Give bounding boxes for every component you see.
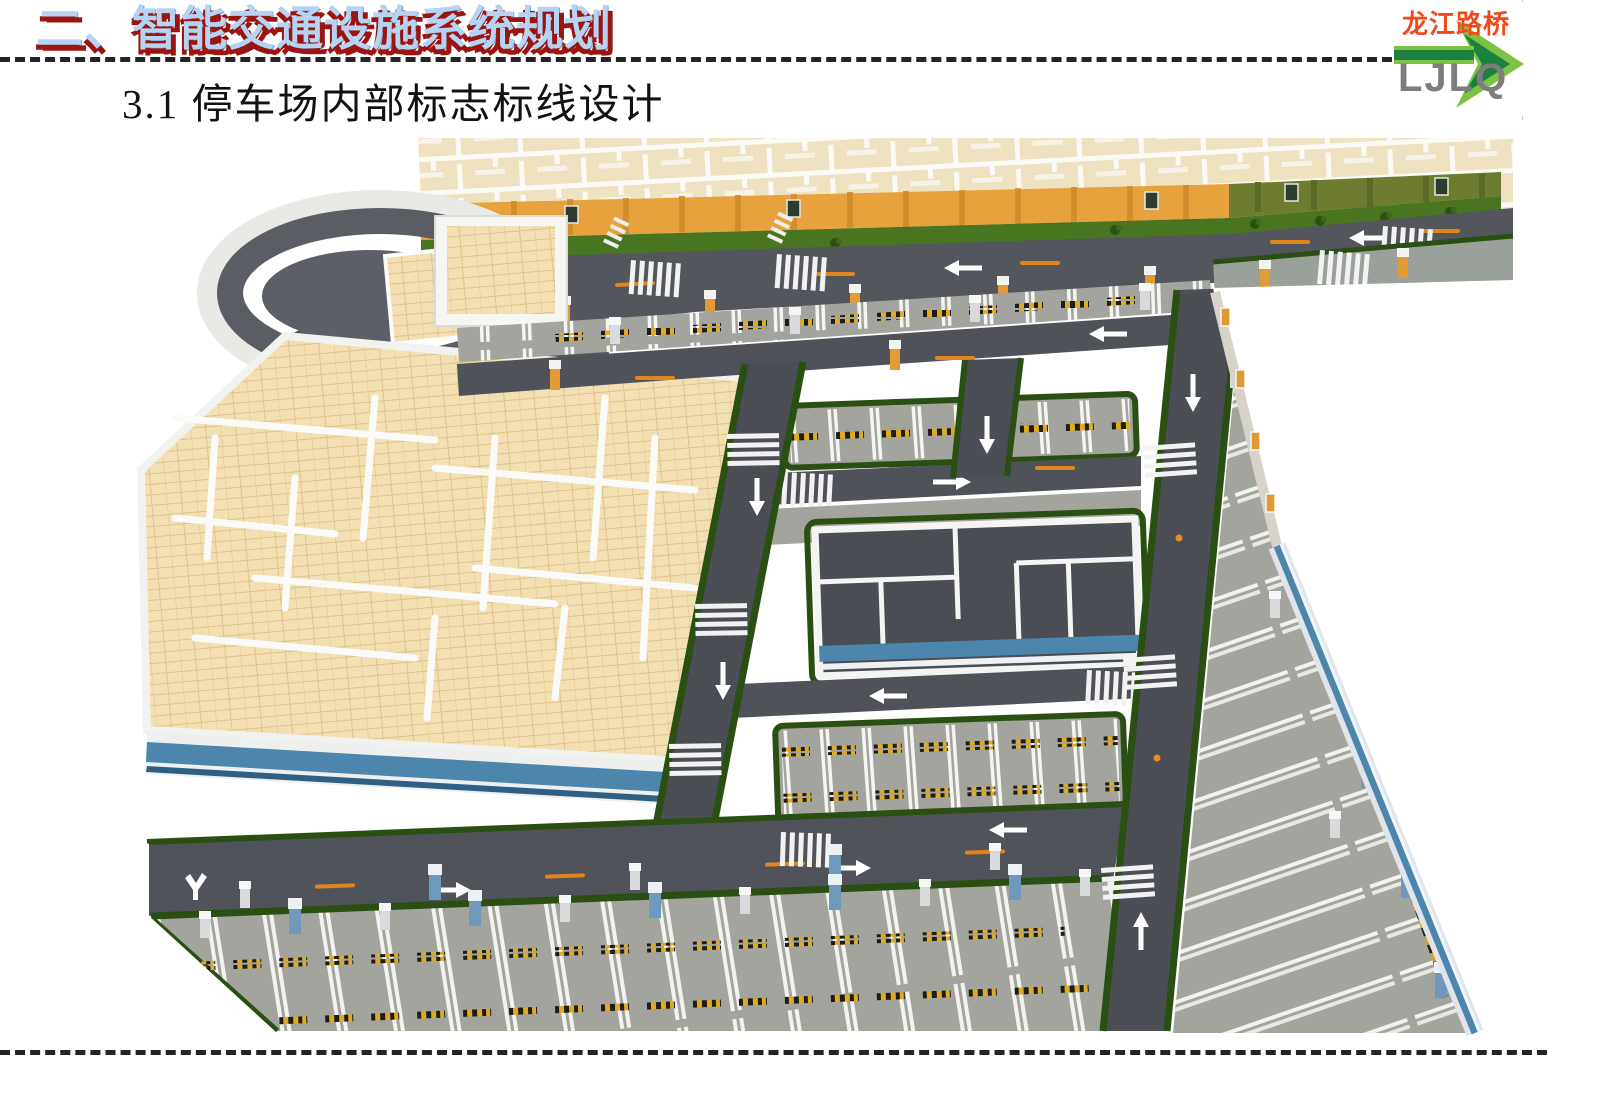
parking-render-svg [135,138,1515,1038]
presentation-slide: 二、智能交通设施系统规划 龙江路桥 LJLQ 3.1 停车场内部标志标线设计 [0,0,1621,1116]
company-logo: 龙江路桥 LJLQ [1394,2,1524,116]
logo-abbreviation: LJLQ [1398,56,1508,101]
central-building [807,511,1148,685]
logo-company-name: 龙江路桥 [1402,4,1510,41]
section-title: 二、智能交通设施系统规划 [36,0,936,60]
parking-lot-3d-render [135,138,1515,1038]
bottom-dashed-divider [0,1050,1547,1055]
top-dashed-divider [0,57,1392,62]
left-building-floorplan [141,336,743,806]
slide-subtitle: 3.1 停车场内部标志标线设计 [122,70,1022,130]
mid-vertical-road [953,358,1021,478]
